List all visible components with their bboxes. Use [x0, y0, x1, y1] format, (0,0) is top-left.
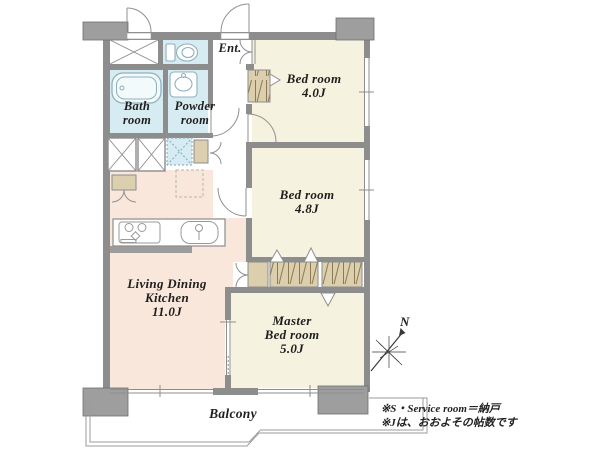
stove-icon: [119, 222, 160, 243]
bedroom-4_0-label: Bed room 4.0J: [277, 72, 351, 100]
footnote-jo-size: ※Jは、おおよその帖数です: [381, 417, 517, 431]
north-label: N: [400, 314, 409, 330]
footnote-service-room: ※S・Service room＝納戸: [381, 403, 517, 417]
powder-room-label: Powder room: [163, 99, 227, 127]
bath-room-label: Bath room: [105, 99, 169, 127]
balcony-label: Balcony: [196, 407, 270, 421]
master-bedroom-label: Master Bed room 5.0J: [250, 314, 334, 356]
kitchen-counter: [113, 219, 225, 246]
ldk-label: Living Dining Kitchen 11.0J: [118, 277, 216, 319]
toilet-icon: [166, 44, 198, 61]
sink-icon: [170, 72, 197, 97]
floorplan-drawing: [0, 0, 600, 450]
entrance-label: Ent.: [210, 41, 250, 55]
compass-icon: [371, 328, 406, 371]
floorplan-canvas: Bath room Powder room Ent. Bed room 4.0J…: [0, 0, 600, 450]
bedroom-4_8-label: Bed room 4.8J: [270, 188, 344, 216]
washing-machine-space: [167, 138, 192, 165]
footnotes: ※S・Service room＝納戸 ※Jは、おおよその帖数です: [381, 403, 517, 430]
